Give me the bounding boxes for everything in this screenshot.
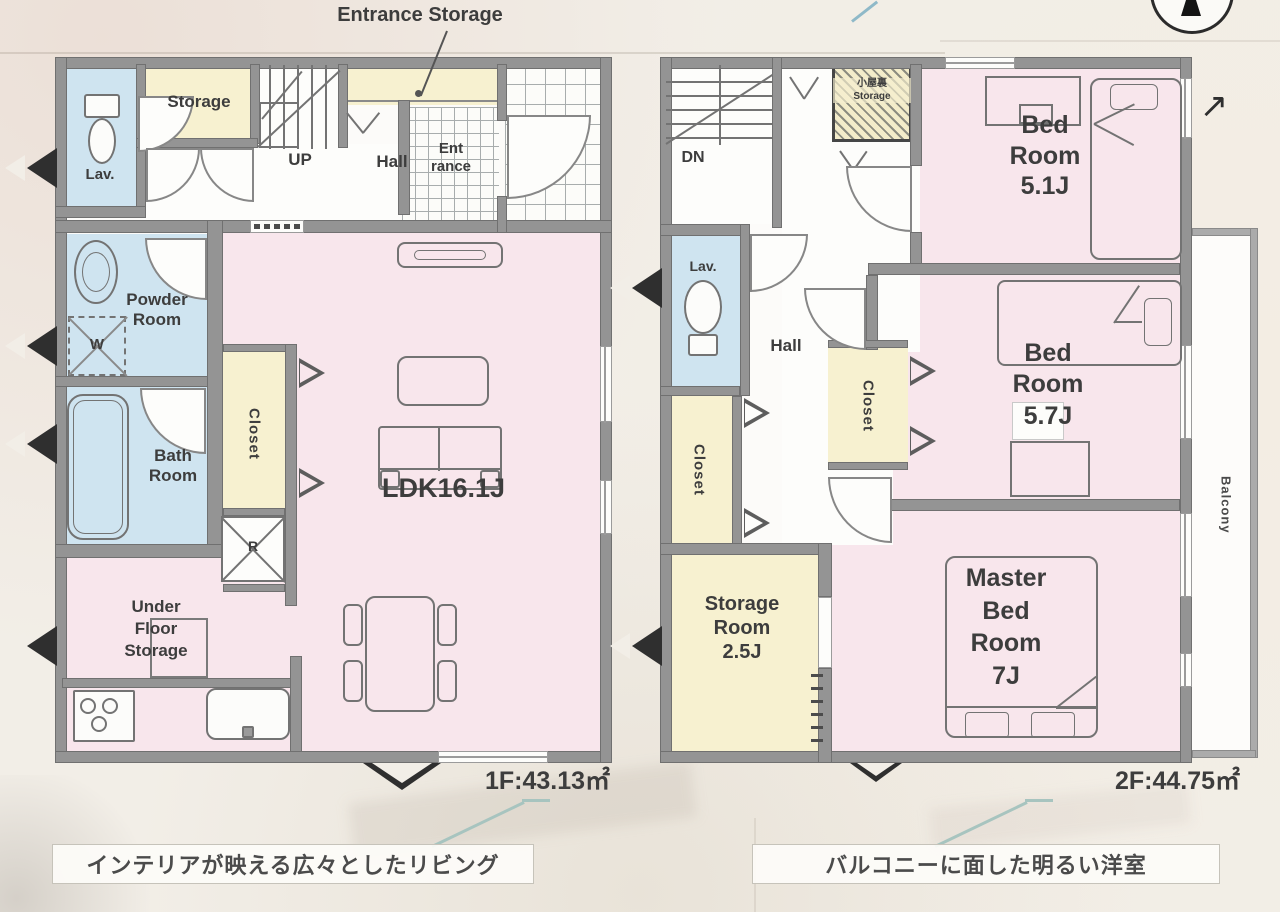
vent-arrow bbox=[27, 148, 57, 188]
floorplan-flyer: Lav. Storage UP Hall Ent rance Powder Ro… bbox=[0, 0, 1280, 912]
entry-marker bbox=[850, 763, 902, 782]
balcony-wall bbox=[1250, 228, 1258, 758]
closet-door-mark bbox=[910, 426, 936, 456]
track-tick bbox=[811, 739, 823, 742]
blanket-fold bbox=[1114, 321, 1142, 323]
wall bbox=[818, 543, 832, 597]
window-line bbox=[1184, 346, 1186, 440]
stair-divider bbox=[719, 65, 721, 145]
room-master-west bbox=[830, 545, 891, 751]
window bbox=[600, 480, 612, 534]
crease-line bbox=[940, 40, 1280, 42]
wall bbox=[660, 386, 740, 396]
track-tick bbox=[811, 726, 823, 729]
closet-door-mark bbox=[910, 356, 936, 386]
annotation-entrance-storage: Entrance Storage bbox=[320, 3, 520, 27]
wall bbox=[910, 64, 922, 166]
room-hall-2f-corridor bbox=[782, 352, 828, 545]
label-under-floor-storage: Under Floor Storage bbox=[104, 596, 208, 662]
window-line bbox=[604, 481, 606, 535]
coffee-table bbox=[397, 356, 489, 406]
closet-door-mark bbox=[299, 358, 325, 388]
wall bbox=[497, 64, 507, 121]
track-tick bbox=[811, 713, 823, 716]
wall bbox=[660, 751, 1192, 763]
dining-chair bbox=[437, 604, 457, 646]
pillow bbox=[1144, 298, 1172, 346]
label-bedroom2: Bed Room 5.7J bbox=[968, 338, 1128, 432]
toilet-bowl bbox=[88, 118, 116, 164]
track-tick bbox=[811, 674, 823, 677]
wall bbox=[290, 656, 302, 752]
powder-sink-inner bbox=[82, 252, 110, 292]
label-closet-west: Closet bbox=[666, 420, 732, 520]
shelf-line bbox=[341, 100, 499, 102]
closet-door-mark bbox=[744, 508, 770, 538]
toilet-tank bbox=[84, 94, 120, 118]
opening-tick bbox=[274, 224, 280, 229]
toilet-tank bbox=[688, 334, 718, 356]
label-closet-1f: Closet bbox=[223, 384, 285, 484]
wall bbox=[285, 344, 297, 606]
label-ldk: LDK16.1J bbox=[356, 472, 531, 504]
window bbox=[1180, 653, 1192, 687]
label-closet-center: Closet bbox=[836, 352, 900, 460]
stove-burner bbox=[91, 716, 107, 732]
label-balcony: Balcony bbox=[1204, 450, 1248, 560]
wall bbox=[55, 206, 146, 218]
window-line bbox=[1184, 654, 1186, 688]
vent-arrow bbox=[27, 626, 57, 666]
wall bbox=[338, 64, 348, 148]
storage-door-gap bbox=[818, 597, 832, 668]
label-attic-storage: 小屋裏 Storage bbox=[833, 78, 911, 103]
caption-bedroom-text: バルコニーに面した明るい洋室 bbox=[825, 848, 1147, 880]
label-master-bedroom: Master Bed Room 7J bbox=[926, 562, 1086, 692]
opening-tick bbox=[254, 224, 260, 229]
blanket-fold bbox=[1056, 707, 1096, 709]
window-line bbox=[604, 347, 606, 423]
wall bbox=[740, 224, 750, 396]
wall bbox=[891, 499, 1180, 511]
wall bbox=[55, 544, 225, 558]
vent-arrow bbox=[27, 326, 57, 366]
attic-storage-hatch bbox=[832, 64, 912, 142]
wall bbox=[828, 462, 908, 470]
track-tick bbox=[811, 687, 823, 690]
annotation-leader-dot bbox=[415, 90, 422, 97]
stove-burner bbox=[80, 698, 96, 714]
stove-burner bbox=[102, 698, 118, 714]
crease-line bbox=[0, 52, 945, 54]
wall bbox=[223, 584, 285, 592]
wall bbox=[55, 376, 220, 387]
label-up: UP bbox=[280, 150, 320, 170]
label-area-2f: 2F:44.75㎡ bbox=[1040, 766, 1240, 796]
balcony-door bbox=[1180, 513, 1192, 597]
dining-chair bbox=[343, 660, 363, 702]
toilet-bowl bbox=[684, 280, 722, 334]
dining-chair bbox=[343, 604, 363, 646]
caption-bedroom: バルコニーに面した明るい洋室 bbox=[752, 844, 1220, 884]
caption-leader-tick bbox=[522, 799, 550, 802]
entry-marker bbox=[363, 763, 441, 790]
window-line bbox=[945, 62, 1015, 64]
label-lav-1f: Lav. bbox=[74, 166, 126, 184]
label-storage-room: Storage Room 2.5J bbox=[666, 592, 818, 664]
bathtub-inner bbox=[73, 400, 123, 534]
dining-chair bbox=[437, 660, 457, 702]
stair-tread bbox=[311, 65, 313, 149]
wall bbox=[866, 275, 878, 350]
label-lav-2f: Lav. bbox=[678, 258, 728, 275]
pillow bbox=[965, 712, 1009, 738]
wall bbox=[868, 263, 1180, 275]
opening-tick bbox=[294, 224, 300, 229]
label-bedroom1: Bed Room 5.1J bbox=[960, 110, 1130, 202]
label-dn: DN bbox=[670, 148, 716, 167]
closet-door-mark bbox=[299, 468, 325, 498]
stove bbox=[73, 690, 135, 742]
wall bbox=[55, 220, 612, 233]
wall bbox=[772, 57, 782, 228]
balcony-wall bbox=[1192, 228, 1256, 236]
north-needle-icon bbox=[1181, 0, 1201, 16]
window-line bbox=[1184, 514, 1186, 598]
stair-tread bbox=[325, 65, 327, 149]
balcony-wall bbox=[1192, 750, 1256, 758]
wall bbox=[910, 232, 922, 266]
caption-leader-tick bbox=[1025, 799, 1053, 802]
wall bbox=[497, 196, 507, 233]
label-entrance: Ent rance bbox=[416, 140, 486, 176]
opening-tick bbox=[284, 224, 290, 229]
opening-tick bbox=[264, 224, 270, 229]
label-refrigerator: R bbox=[221, 538, 285, 555]
sofa-divider bbox=[438, 427, 440, 471]
wall bbox=[207, 220, 223, 552]
dining-table bbox=[365, 596, 435, 712]
label-bath-room: Bath Room bbox=[130, 446, 216, 487]
track-tick bbox=[811, 700, 823, 703]
wall bbox=[732, 396, 742, 545]
teal-mark bbox=[851, 1, 878, 23]
pillow bbox=[1110, 84, 1158, 110]
wall bbox=[660, 224, 744, 236]
wall bbox=[223, 508, 285, 516]
window-line bbox=[1184, 79, 1186, 139]
label-hall-2f: Hall bbox=[758, 336, 814, 356]
northeast-arrow-icon: ↗ bbox=[1192, 86, 1236, 127]
wall bbox=[660, 543, 832, 555]
closet-door-mark bbox=[744, 398, 770, 428]
window bbox=[600, 346, 612, 422]
pillow bbox=[1031, 712, 1075, 738]
wall bbox=[660, 57, 1192, 69]
label-powder-room: Powder Room bbox=[112, 290, 202, 331]
vent-arrow bbox=[632, 268, 662, 308]
faucet bbox=[242, 726, 254, 738]
label-washer: W bbox=[68, 336, 126, 354]
caption-living-text: インテリアが映える広々としたリビング bbox=[86, 848, 499, 880]
label-storage-1f: Storage bbox=[146, 92, 252, 112]
tv bbox=[414, 250, 486, 260]
caption-living: インテリアが映える広々としたリビング bbox=[52, 844, 534, 884]
wall bbox=[62, 678, 294, 688]
window-line bbox=[438, 756, 548, 758]
desk bbox=[1010, 441, 1090, 497]
vent-arrow bbox=[632, 626, 662, 666]
vent-arrow bbox=[27, 424, 57, 464]
